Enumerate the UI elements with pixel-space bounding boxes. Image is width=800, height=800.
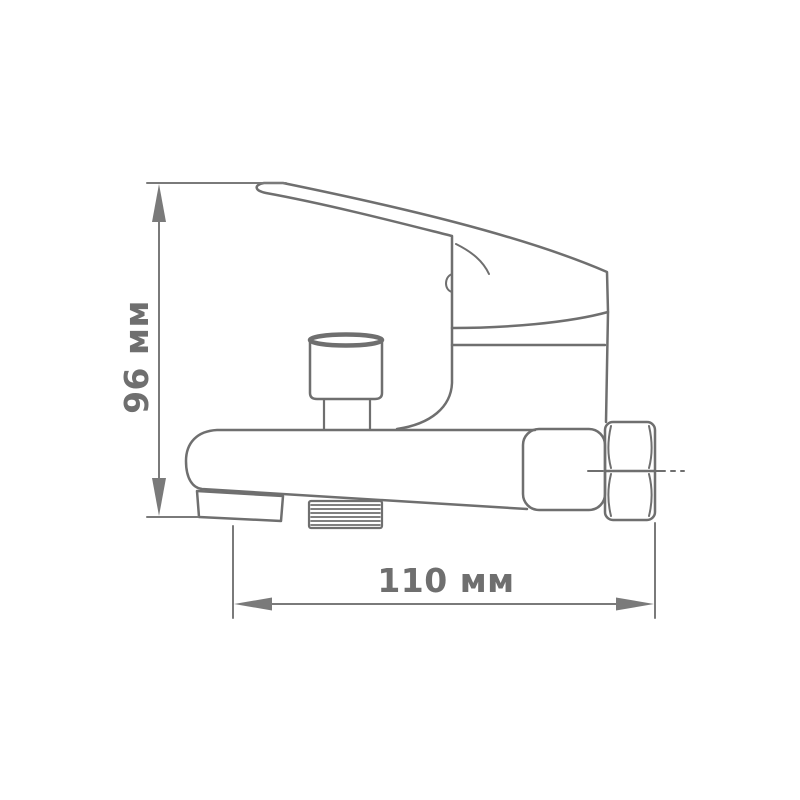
height-dimension bbox=[147, 183, 286, 517]
handle-accent-arc bbox=[456, 244, 489, 274]
connector-sleeve bbox=[523, 429, 605, 510]
lever-handle bbox=[257, 183, 608, 328]
spout-tube bbox=[186, 430, 535, 509]
diagram-svg: 96 мм 110 мм bbox=[0, 0, 800, 800]
diverter-knob-rim bbox=[310, 335, 382, 346]
height-arrow-down bbox=[152, 478, 166, 516]
diverter-knob-cap bbox=[310, 341, 382, 399]
width-arrow-right bbox=[616, 598, 654, 611]
body-right-edge bbox=[606, 312, 608, 422]
height-dimension-label: 96 мм bbox=[117, 300, 156, 414]
thread-lines bbox=[311, 505, 380, 525]
width-arrow-left bbox=[234, 598, 272, 611]
faucet-dimension-diagram: 96 мм 110 мм bbox=[0, 0, 800, 800]
diverter-knob-stem bbox=[324, 400, 370, 429]
body-left-edge bbox=[397, 328, 452, 429]
height-arrow-up bbox=[152, 184, 166, 222]
faucet-drawing bbox=[186, 183, 684, 528]
width-dimension-label: 110 мм bbox=[377, 561, 514, 600]
spout-nozzle bbox=[197, 491, 283, 521]
